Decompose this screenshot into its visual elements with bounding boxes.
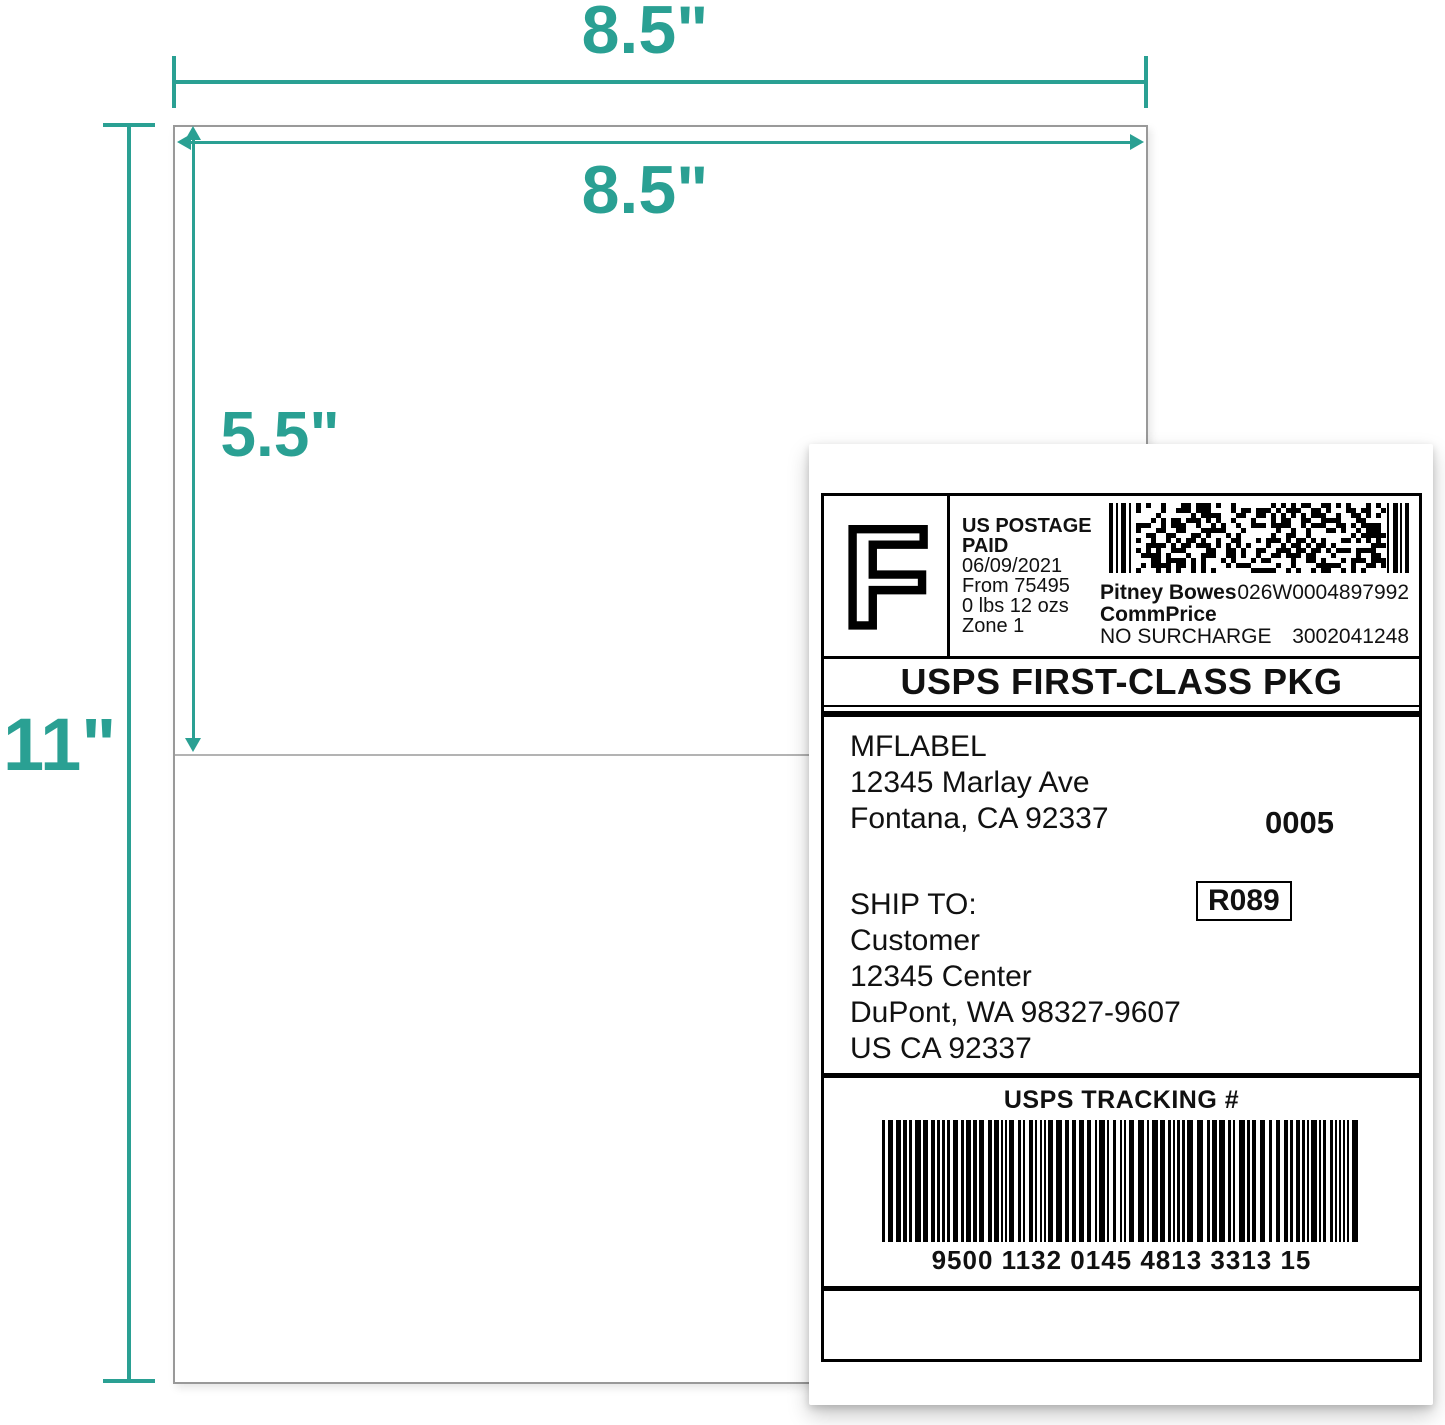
surcharge-note: NO SURCHARGE bbox=[1100, 626, 1272, 648]
from-street: 12345 Marlay Ave bbox=[850, 765, 1109, 801]
width-dimension-tick-right bbox=[1144, 56, 1148, 108]
postage-origin-zip: From 75495 bbox=[962, 576, 1092, 596]
postage-indicia-f-icon: F bbox=[844, 517, 928, 635]
from-name: MFLABEL bbox=[850, 729, 1109, 765]
meter-number: 026W0004897992 bbox=[1237, 582, 1409, 604]
height-dimension-tick-bottom bbox=[103, 1379, 155, 1383]
width-dimension-tick-left bbox=[172, 56, 176, 108]
tracking-barcode bbox=[882, 1120, 1362, 1242]
postage-2d-barcode bbox=[1109, 503, 1409, 573]
height-dimension-line bbox=[127, 123, 131, 1383]
width-dimension-line bbox=[174, 80, 1146, 84]
postage-date: 06/09/2021 bbox=[962, 556, 1092, 576]
arrow-down-icon bbox=[185, 738, 201, 752]
postage-line-2: PAID bbox=[962, 536, 1092, 556]
route-code: R089 bbox=[1196, 881, 1292, 921]
postage-weight: 0 lbs 12 ozs bbox=[962, 596, 1092, 616]
inner-width-label: 8.5" bbox=[545, 156, 745, 224]
product-diagram: 8.5" 11" 8.5" 5.5" F US POSTAGE PAID bbox=[0, 0, 1445, 1425]
arrow-right-icon bbox=[1130, 134, 1144, 150]
postage-line-1: US POSTAGE bbox=[962, 516, 1092, 536]
batch-number: 0005 bbox=[1265, 805, 1334, 841]
to-street: 12345 Center bbox=[850, 959, 1181, 995]
tracking-number: 9500 1132 0145 4813 3313 15 bbox=[824, 1245, 1419, 1276]
blank-section bbox=[824, 1291, 1419, 1359]
from-address: MFLABEL 12345 Marlay Ave Fontana, CA 923… bbox=[850, 729, 1109, 837]
postage-meta: Pitney Bowes 026W0004897992 CommPrice NO… bbox=[1100, 582, 1409, 648]
sheet-width-label: 8.5" bbox=[545, 0, 745, 64]
inner-width-arrow-line bbox=[190, 141, 1132, 144]
to-name: Customer bbox=[850, 923, 1181, 959]
rate-plan: CommPrice bbox=[1100, 604, 1217, 626]
address-section: MFLABEL 12345 Marlay Ave Fontana, CA 923… bbox=[824, 717, 1419, 1078]
arrow-up-icon bbox=[185, 126, 201, 140]
shipping-label: F US POSTAGE PAID 06/09/2021 From 75495 … bbox=[821, 493, 1422, 1362]
to-country: US CA 92337 bbox=[850, 1031, 1181, 1067]
sheet-height-label: 11" bbox=[3, 708, 115, 782]
serial-number: 3002041248 bbox=[1292, 626, 1409, 648]
postage-details: US POSTAGE PAID 06/09/2021 From 75495 0 … bbox=[962, 516, 1092, 636]
indicia-cell: F bbox=[824, 496, 950, 656]
half-height-arrow-line bbox=[192, 138, 195, 740]
tracking-section: USPS TRACKING # 9500 1132 0145 4813 3313… bbox=[824, 1078, 1419, 1291]
ship-to-label: SHIP TO: bbox=[850, 887, 1181, 923]
postage-section: F US POSTAGE PAID 06/09/2021 From 75495 … bbox=[824, 496, 1419, 659]
tracking-header: USPS TRACKING # bbox=[824, 1086, 1419, 1115]
half-height-label: 5.5" bbox=[200, 402, 360, 466]
height-dimension-tick-top bbox=[103, 123, 155, 127]
shipping-label-card: F US POSTAGE PAID 06/09/2021 From 75495 … bbox=[809, 444, 1433, 1405]
from-city: Fontana, CA 92337 bbox=[850, 801, 1109, 837]
postage-zone: Zone 1 bbox=[962, 616, 1092, 636]
to-city: DuPont, WA 98327-9607 bbox=[850, 995, 1181, 1031]
ship-to-address: SHIP TO: Customer 12345 Center DuPont, W… bbox=[850, 887, 1181, 1067]
carrier-name: Pitney Bowes bbox=[1100, 582, 1237, 604]
service-banner: USPS FIRST-CLASS PKG bbox=[824, 659, 1419, 707]
postage-details-cell: US POSTAGE PAID 06/09/2021 From 75495 0 … bbox=[950, 496, 1419, 656]
indicia-letter: F bbox=[843, 498, 929, 655]
